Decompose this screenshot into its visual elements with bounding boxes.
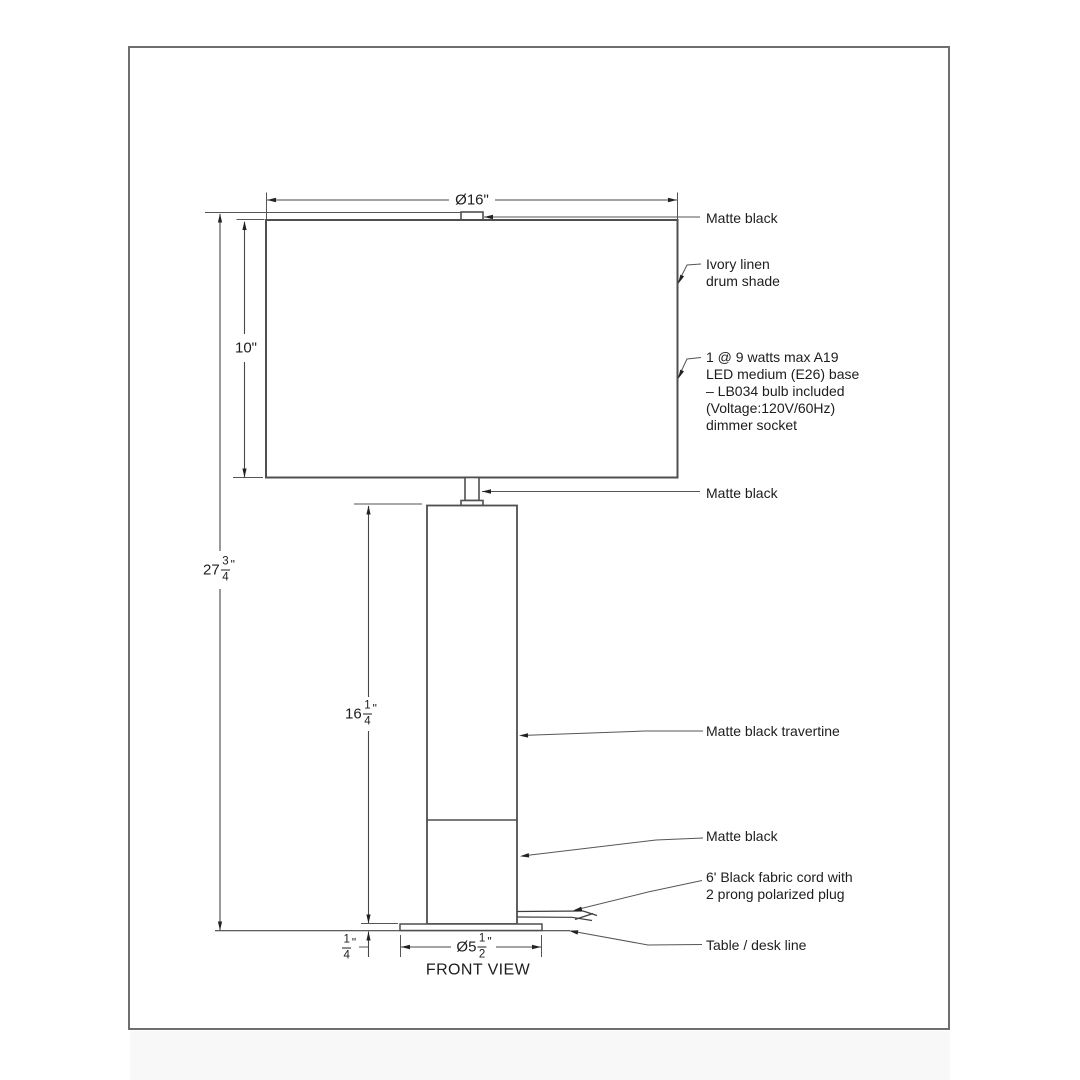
arrow-leader-shade-material [678, 275, 684, 284]
annotation-line: LED medium (E26) base [706, 366, 859, 383]
arrow-base-dia-left [401, 945, 410, 949]
arrow-leader-table-line [569, 930, 578, 934]
annotation-line: – LB034 bulb included [706, 383, 859, 400]
annotation-table-line: Table / desk line [706, 937, 806, 954]
arrow-overall-top [218, 214, 222, 223]
lamp-front-view [266, 212, 678, 931]
arrow-shade-height-top [242, 221, 246, 230]
dim-shade-height-text: 10" [235, 341, 257, 356]
annotation-line: 2 prong polarized plug [706, 886, 853, 903]
leader-table-line [571, 931, 702, 945]
lamp-body [427, 506, 517, 925]
leader-shade-material [679, 264, 702, 282]
annotation-line: drum shade [706, 273, 780, 290]
leader-cord-spec [575, 881, 702, 911]
fraction: 34 [221, 557, 230, 584]
arrow-body-height-bottom [366, 915, 370, 924]
arrow-leader-shade-top-finish [484, 215, 493, 219]
dim-overall-height-label: 2734" [201, 557, 237, 584]
power-cord [517, 911, 597, 921]
fraction: 12 [477, 934, 486, 961]
annotation-shade-top-finish: Matte black [706, 210, 778, 227]
dim-shade-diameter-text: Ø16" [455, 193, 489, 208]
annotation-base-finish: Matte black [706, 828, 778, 845]
front-view-label: FRONT VIEW [426, 962, 530, 979]
dim-shade-height-label: 10" [233, 341, 259, 356]
sheet-bottom-shadow [130, 1031, 950, 1080]
annotation-line: (Voltage:120V/60Hz) [706, 400, 859, 417]
arrow-base-height [366, 932, 370, 941]
drawing-sheet: Ø16" 10" 2734" 1614" 14" Ø512" FRONT VIE… [0, 0, 1080, 1080]
annotation-neck-finish: Matte black [706, 485, 778, 502]
arrow-body-height-top [366, 506, 370, 515]
leader-body-material [521, 731, 703, 736]
dim-base-height-label: 14" [339, 935, 358, 962]
annotation-shade-material: Ivory linen drum shade [706, 256, 780, 290]
dim-base-diameter-label: Ø512" [454, 934, 493, 961]
arrow-leader-base-finish [520, 853, 529, 857]
arrow-shade-dia-left [267, 198, 276, 202]
arrow-leader-bulb [678, 370, 684, 379]
fraction: 14 [342, 935, 351, 962]
arrow-overall-bottom [218, 922, 222, 931]
arrow-leader-body-material [519, 733, 528, 737]
annotation-bulb-spec: 1 @ 9 watts max A19 LED medium (E26) bas… [706, 349, 859, 434]
arrow-leader-cord [573, 907, 582, 911]
arrow-base-dia-right [532, 945, 541, 949]
annotation-body-material: Matte black travertine [706, 723, 840, 740]
annotation-line: Ivory linen [706, 256, 780, 273]
annotation-line: dimmer socket [706, 417, 859, 434]
lamp-shade [266, 220, 678, 478]
arrow-shade-height-bottom [242, 469, 246, 478]
plug-prongs [572, 911, 597, 921]
dim-body-height-label: 1614" [343, 701, 379, 728]
lamp-base [400, 924, 542, 931]
lamp-neck [465, 478, 479, 501]
leader-base-finish [522, 838, 703, 856]
technical-drawing-canvas [0, 0, 1080, 1080]
cord-top-line [517, 911, 583, 912]
annotation-cord-spec: 6' Black fabric cord with 2 prong polari… [706, 869, 853, 903]
arrow-shade-dia-right [668, 198, 677, 202]
annotation-line: 1 @ 9 watts max A19 [706, 349, 859, 366]
dim-shade-diameter-label: Ø16" [453, 193, 491, 208]
fraction: 14 [363, 701, 372, 728]
arrow-leader-neck-finish [482, 489, 491, 493]
annotation-line: 6' Black fabric cord with [706, 869, 853, 886]
